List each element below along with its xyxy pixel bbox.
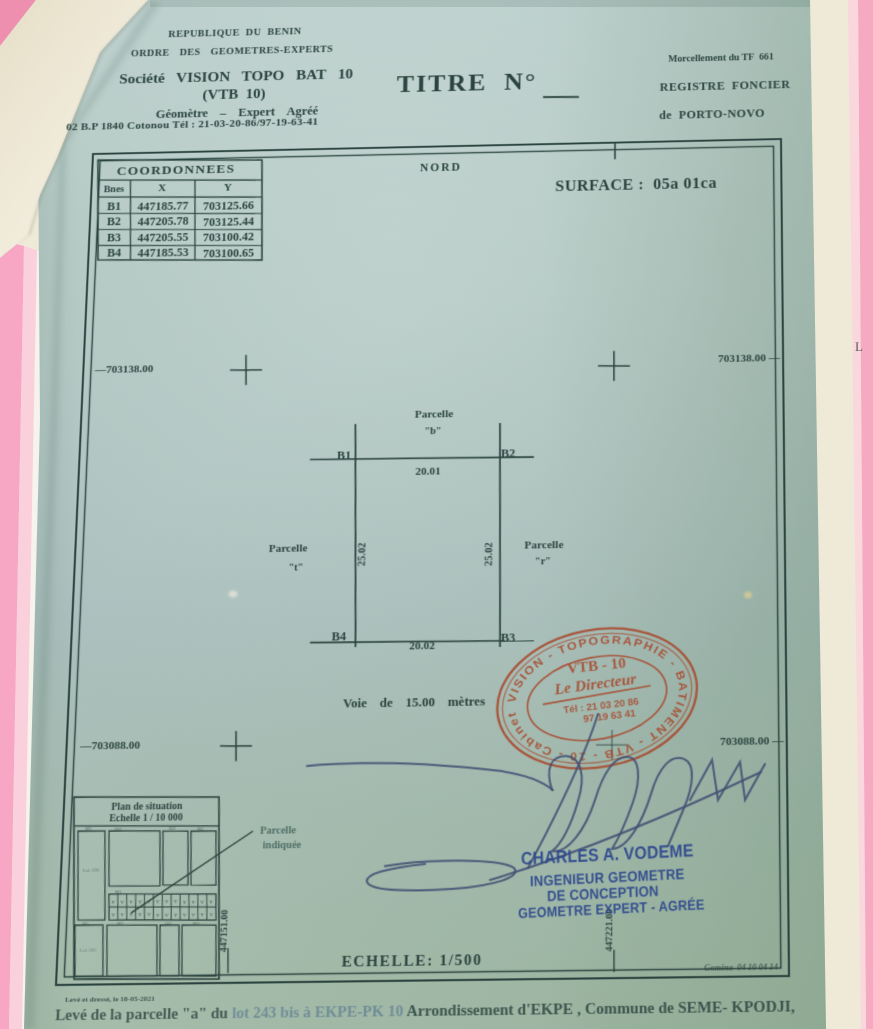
svg-text:v: v bbox=[147, 912, 151, 919]
svg-text:v: v bbox=[112, 899, 116, 906]
svg-text:v: v bbox=[138, 912, 142, 919]
svg-text:v: v bbox=[209, 912, 213, 919]
svg-text:v: v bbox=[183, 912, 187, 919]
svg-text:v: v bbox=[156, 899, 160, 906]
svg-text:v: v bbox=[192, 899, 196, 906]
svg-text:v: v bbox=[210, 899, 214, 906]
svg-text:v: v bbox=[201, 912, 205, 919]
svg-text:v: v bbox=[129, 899, 133, 906]
svg-text:v: v bbox=[192, 912, 196, 919]
svg-text:v: v bbox=[120, 899, 124, 906]
svg-text:v: v bbox=[165, 899, 169, 906]
svg-text:v: v bbox=[156, 912, 160, 919]
svg-text:v: v bbox=[183, 899, 187, 906]
svg-text:v: v bbox=[120, 912, 124, 919]
svg-text:v: v bbox=[138, 899, 142, 906]
svg-text:v: v bbox=[174, 912, 178, 919]
svg-text:v: v bbox=[112, 912, 116, 919]
svg-text:v: v bbox=[165, 912, 169, 919]
svg-text:v: v bbox=[201, 899, 205, 906]
svg-text:v: v bbox=[174, 899, 178, 906]
